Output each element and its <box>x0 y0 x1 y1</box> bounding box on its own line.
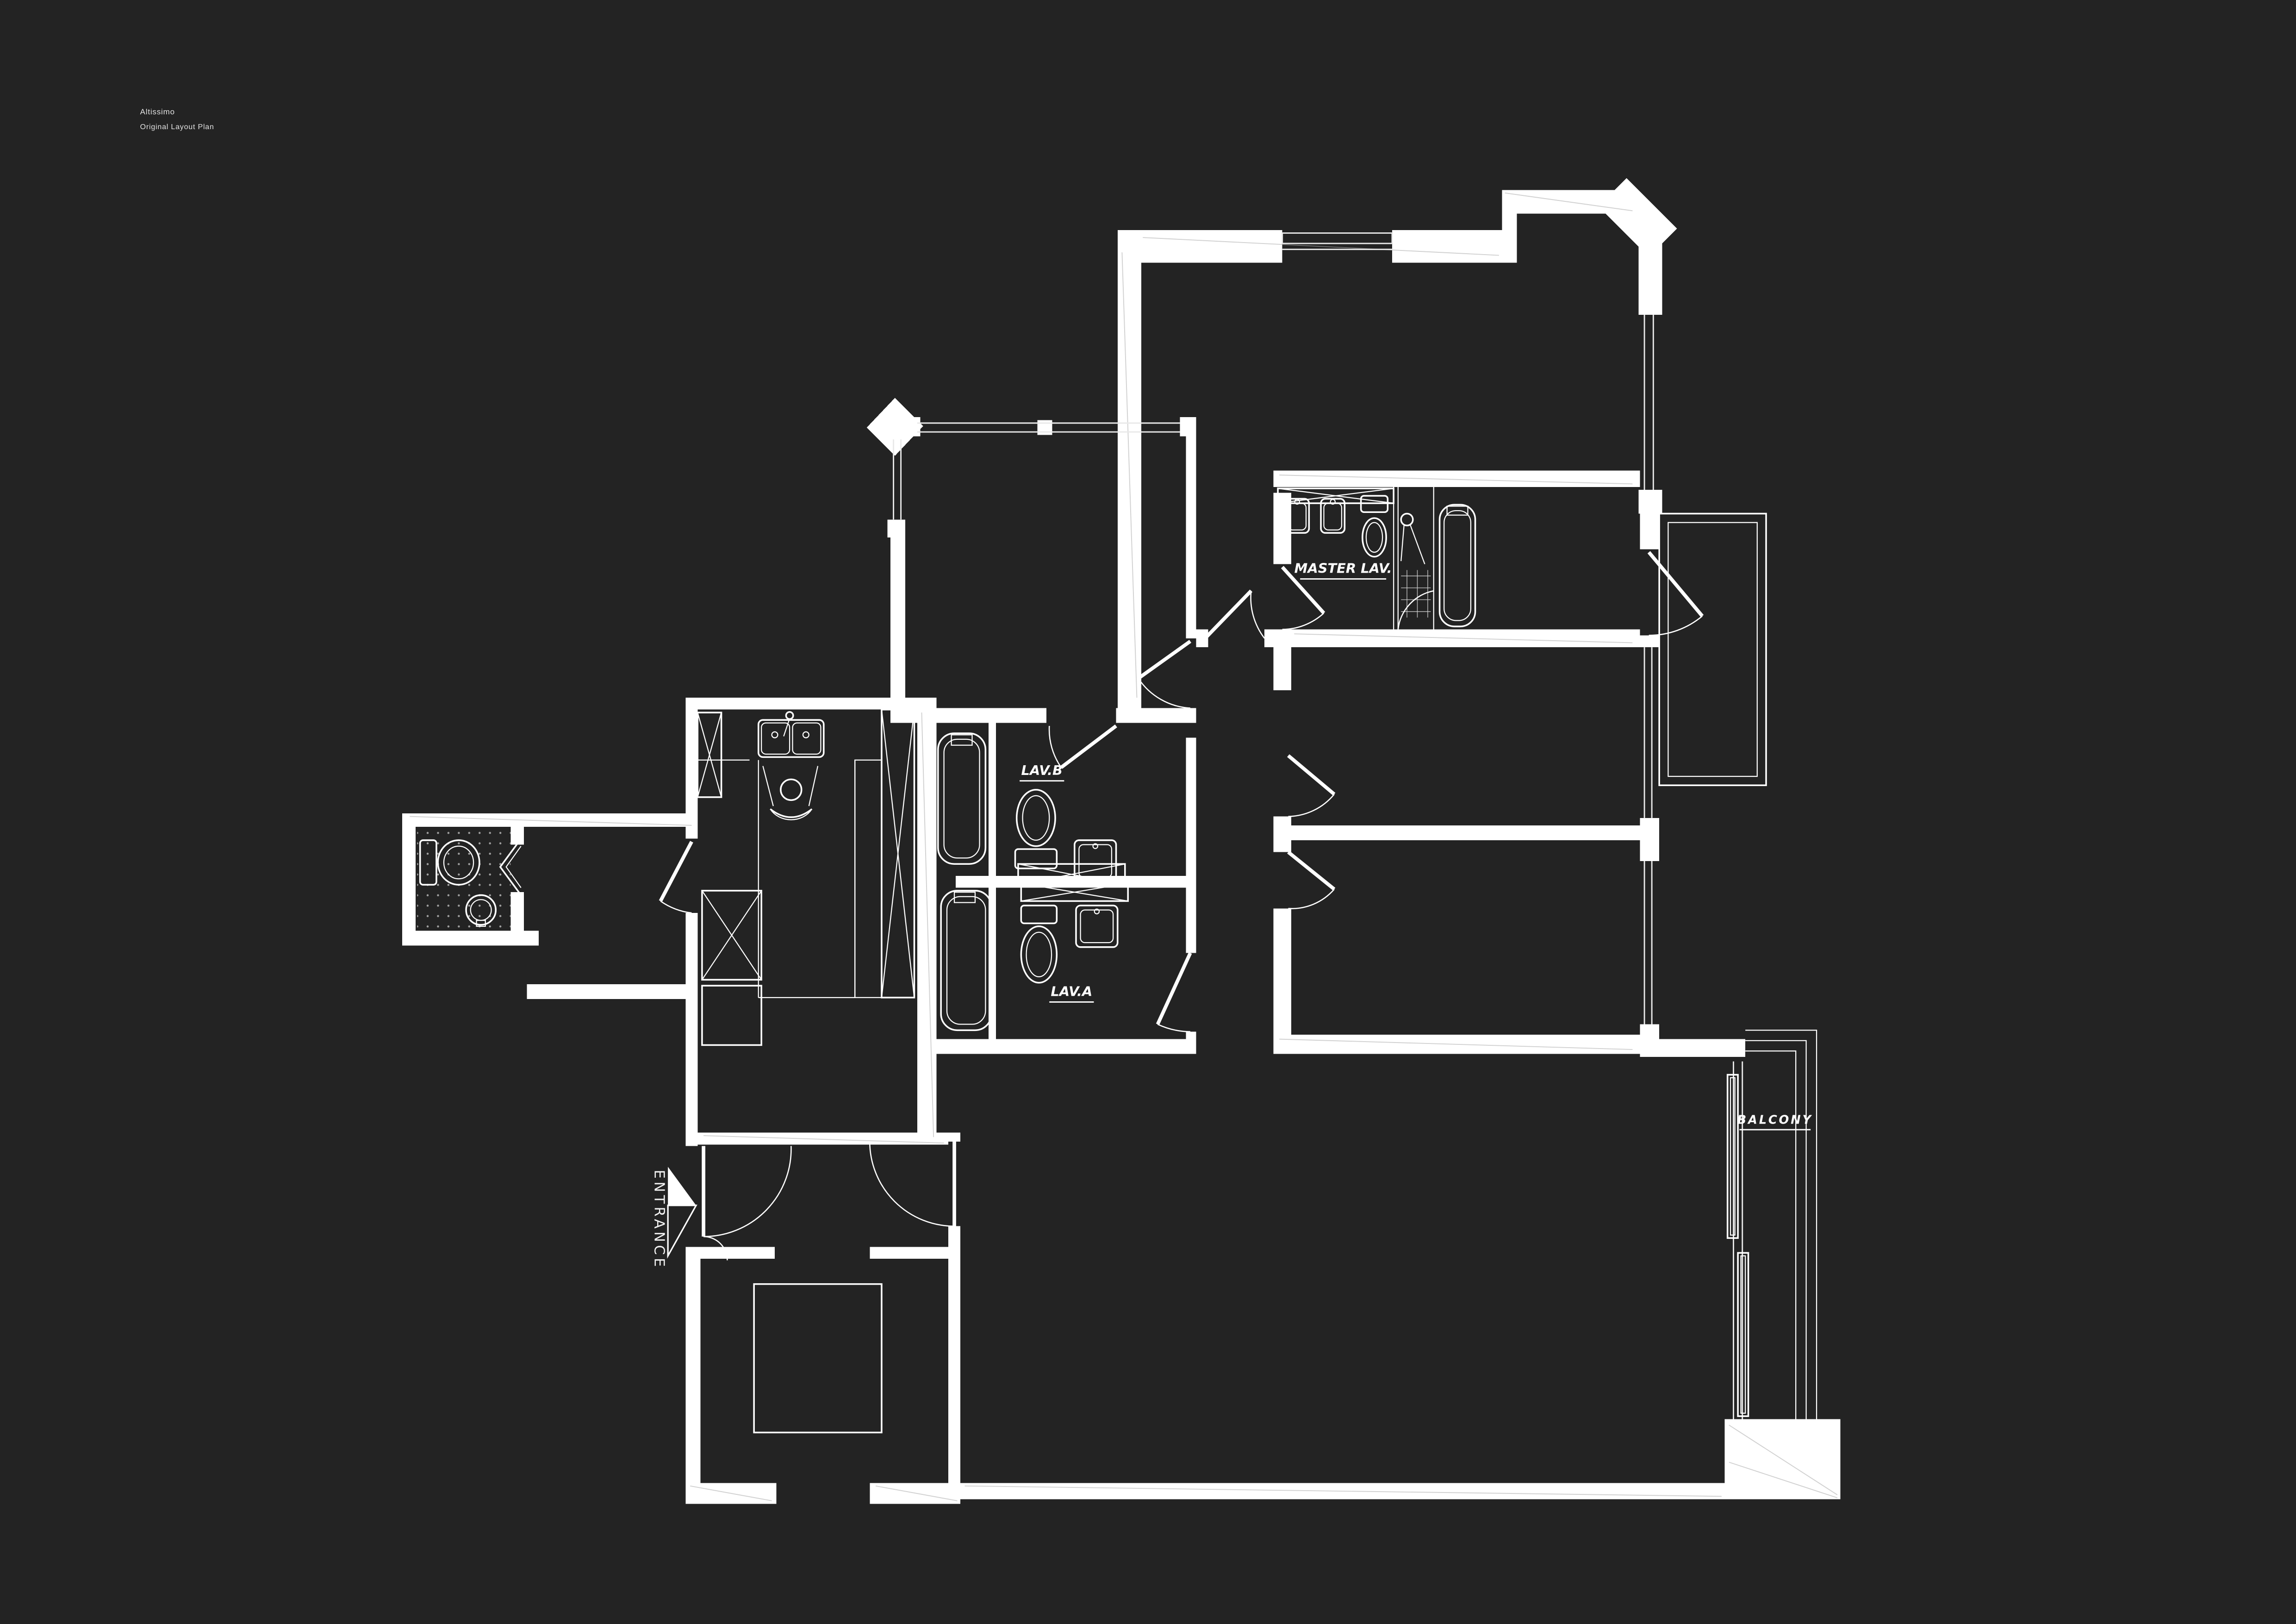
page-subtitle: Original Layout Plan <box>140 123 214 131</box>
sliding-panel <box>1728 1075 1738 1238</box>
lav-a-fixtures <box>941 883 1128 1030</box>
foyer-closets <box>702 891 761 1045</box>
title-block: Altissimo Original Layout Plan <box>140 107 214 131</box>
walls <box>402 178 1840 1504</box>
basin <box>1076 906 1118 947</box>
balcony-structure <box>1728 1030 1817 1440</box>
entrance-arrow-icon <box>668 1167 696 1255</box>
windows <box>894 233 1654 1024</box>
bathtub <box>941 891 991 1030</box>
wc-fixtures <box>417 828 510 929</box>
label-lav-b: LAV.B <box>1021 762 1063 778</box>
tiled-floor <box>417 828 510 929</box>
room-labels: MASTER LAV. LAV.B LAV.A BALCONY ENTRANCE <box>651 561 1813 1270</box>
label-entrance: ENTRANCE <box>651 1170 667 1270</box>
bathtub <box>1440 505 1475 626</box>
page-title: Altissimo <box>140 107 214 117</box>
sliding-panel <box>1738 1253 1748 1416</box>
lav-b-fixtures <box>938 733 1125 885</box>
floor-plan-drawing: MASTER LAV. LAV.B LAV.A BALCONY ENTRANCE <box>0 0 2296 1624</box>
toilet-tank <box>1021 906 1057 923</box>
pantry-cabinet <box>882 710 915 998</box>
label-master-lav: MASTER LAV. <box>1294 561 1392 576</box>
master-lav-fixtures <box>1278 487 1475 630</box>
label-balcony: BALCONY <box>1737 1113 1813 1127</box>
railing-line <box>1745 1051 1796 1419</box>
shower-head <box>1401 513 1413 525</box>
toilet-tank <box>1015 849 1057 868</box>
utility-yard <box>1659 513 1766 785</box>
basin <box>1075 840 1116 882</box>
floor-plan-page: Altissimo Original Layout Plan <box>0 0 2296 1624</box>
faucet <box>786 712 793 719</box>
lift <box>754 1284 882 1433</box>
tall-cabinet <box>697 712 721 797</box>
kitchen-fixtures <box>697 710 914 1045</box>
railing-line <box>1745 1041 1806 1428</box>
person-figure <box>763 766 818 820</box>
lift-car <box>754 1284 882 1433</box>
label-lav-a: LAV.A <box>1051 984 1092 999</box>
double-sink <box>759 720 824 757</box>
bathtub <box>938 733 986 864</box>
